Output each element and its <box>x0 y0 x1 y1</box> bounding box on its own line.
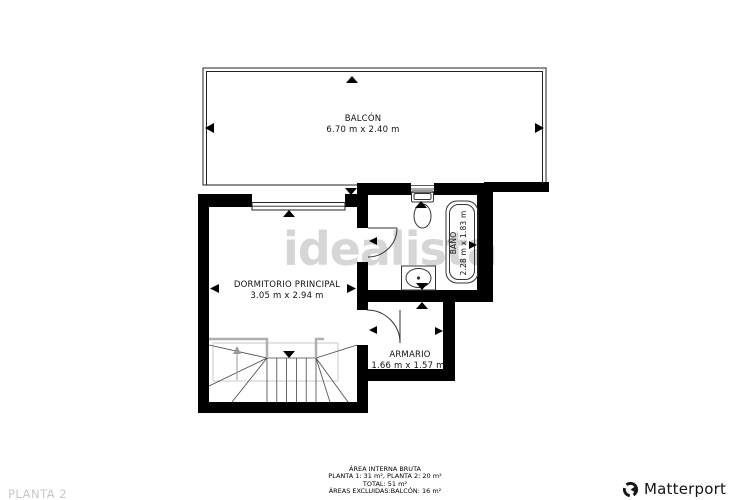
balcony-arrow-down <box>345 188 357 195</box>
bedroom-window <box>252 203 345 211</box>
bedroom-arrow-up <box>283 210 295 217</box>
bath-arrow-down <box>416 283 428 290</box>
closet-arrow-up <box>416 302 428 309</box>
bedroom-arrow-down <box>283 351 295 358</box>
closet-dims: 1.66 m x 1.57 m <box>371 361 444 371</box>
closet-arrow-left <box>369 326 377 334</box>
closet-door-arc <box>367 310 400 343</box>
stairs <box>209 339 357 402</box>
bedroom-dims: 3.05 m x 2.94 m <box>250 291 323 301</box>
bath-arrow-left <box>369 237 377 245</box>
closet-arrow-right <box>435 327 443 335</box>
area-summary-excluded: ÁREAS EXCLUIDAS:BALCÓN: 16 m² <box>235 488 535 495</box>
sink <box>402 266 436 290</box>
closet-label: ARMARIO <box>389 350 430 360</box>
floorplan-page: idealista <box>0 0 750 500</box>
floor-label: PLANTA 2 <box>8 487 67 500</box>
bathroom-label: BAÑO <box>449 232 458 255</box>
area-summary: ÁREA INTERNA BRUTA PLANTA 1: 31 m², PLAN… <box>235 466 535 496</box>
balcony-arrow-up <box>346 76 358 83</box>
toilet <box>412 191 434 228</box>
matterport-brand: Matterport <box>622 480 726 498</box>
balcony-label: BALCÓN <box>345 112 382 124</box>
matterport-wordmark: Matterport <box>644 480 726 498</box>
matterport-logo-icon <box>622 481 639 498</box>
balcony-dims: 6.70 m x 2.40 m <box>326 125 399 135</box>
bath-arrow-right <box>469 241 477 249</box>
bedroom-label: DORMITORIO PRINCIPAL <box>234 280 340 290</box>
stair-direction-arrow <box>233 346 241 380</box>
bedroom-arrow-left <box>210 284 219 293</box>
bathroom-dims: 2.28 m x 1.83 m <box>459 211 468 276</box>
floor-plan-drawing: BALCÓN 6.70 m x 2.40 m DORMITORIO PRINCI… <box>0 0 750 500</box>
stair-rail <box>209 339 324 357</box>
bedroom-arrow-right <box>347 284 356 293</box>
